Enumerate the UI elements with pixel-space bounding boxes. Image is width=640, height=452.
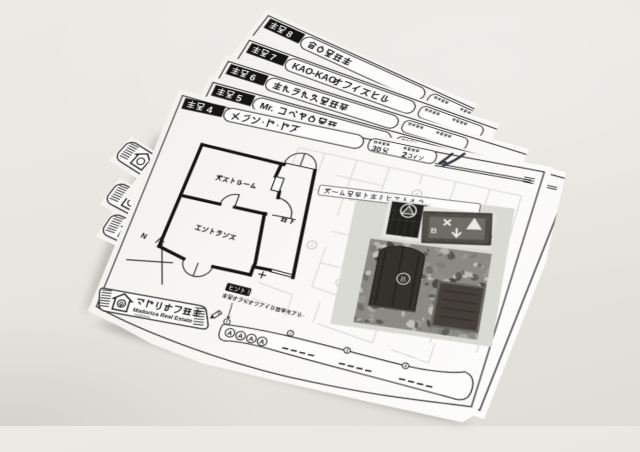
svg-text:N: N [139, 232, 148, 241]
svg-text:B: B [430, 228, 437, 236]
